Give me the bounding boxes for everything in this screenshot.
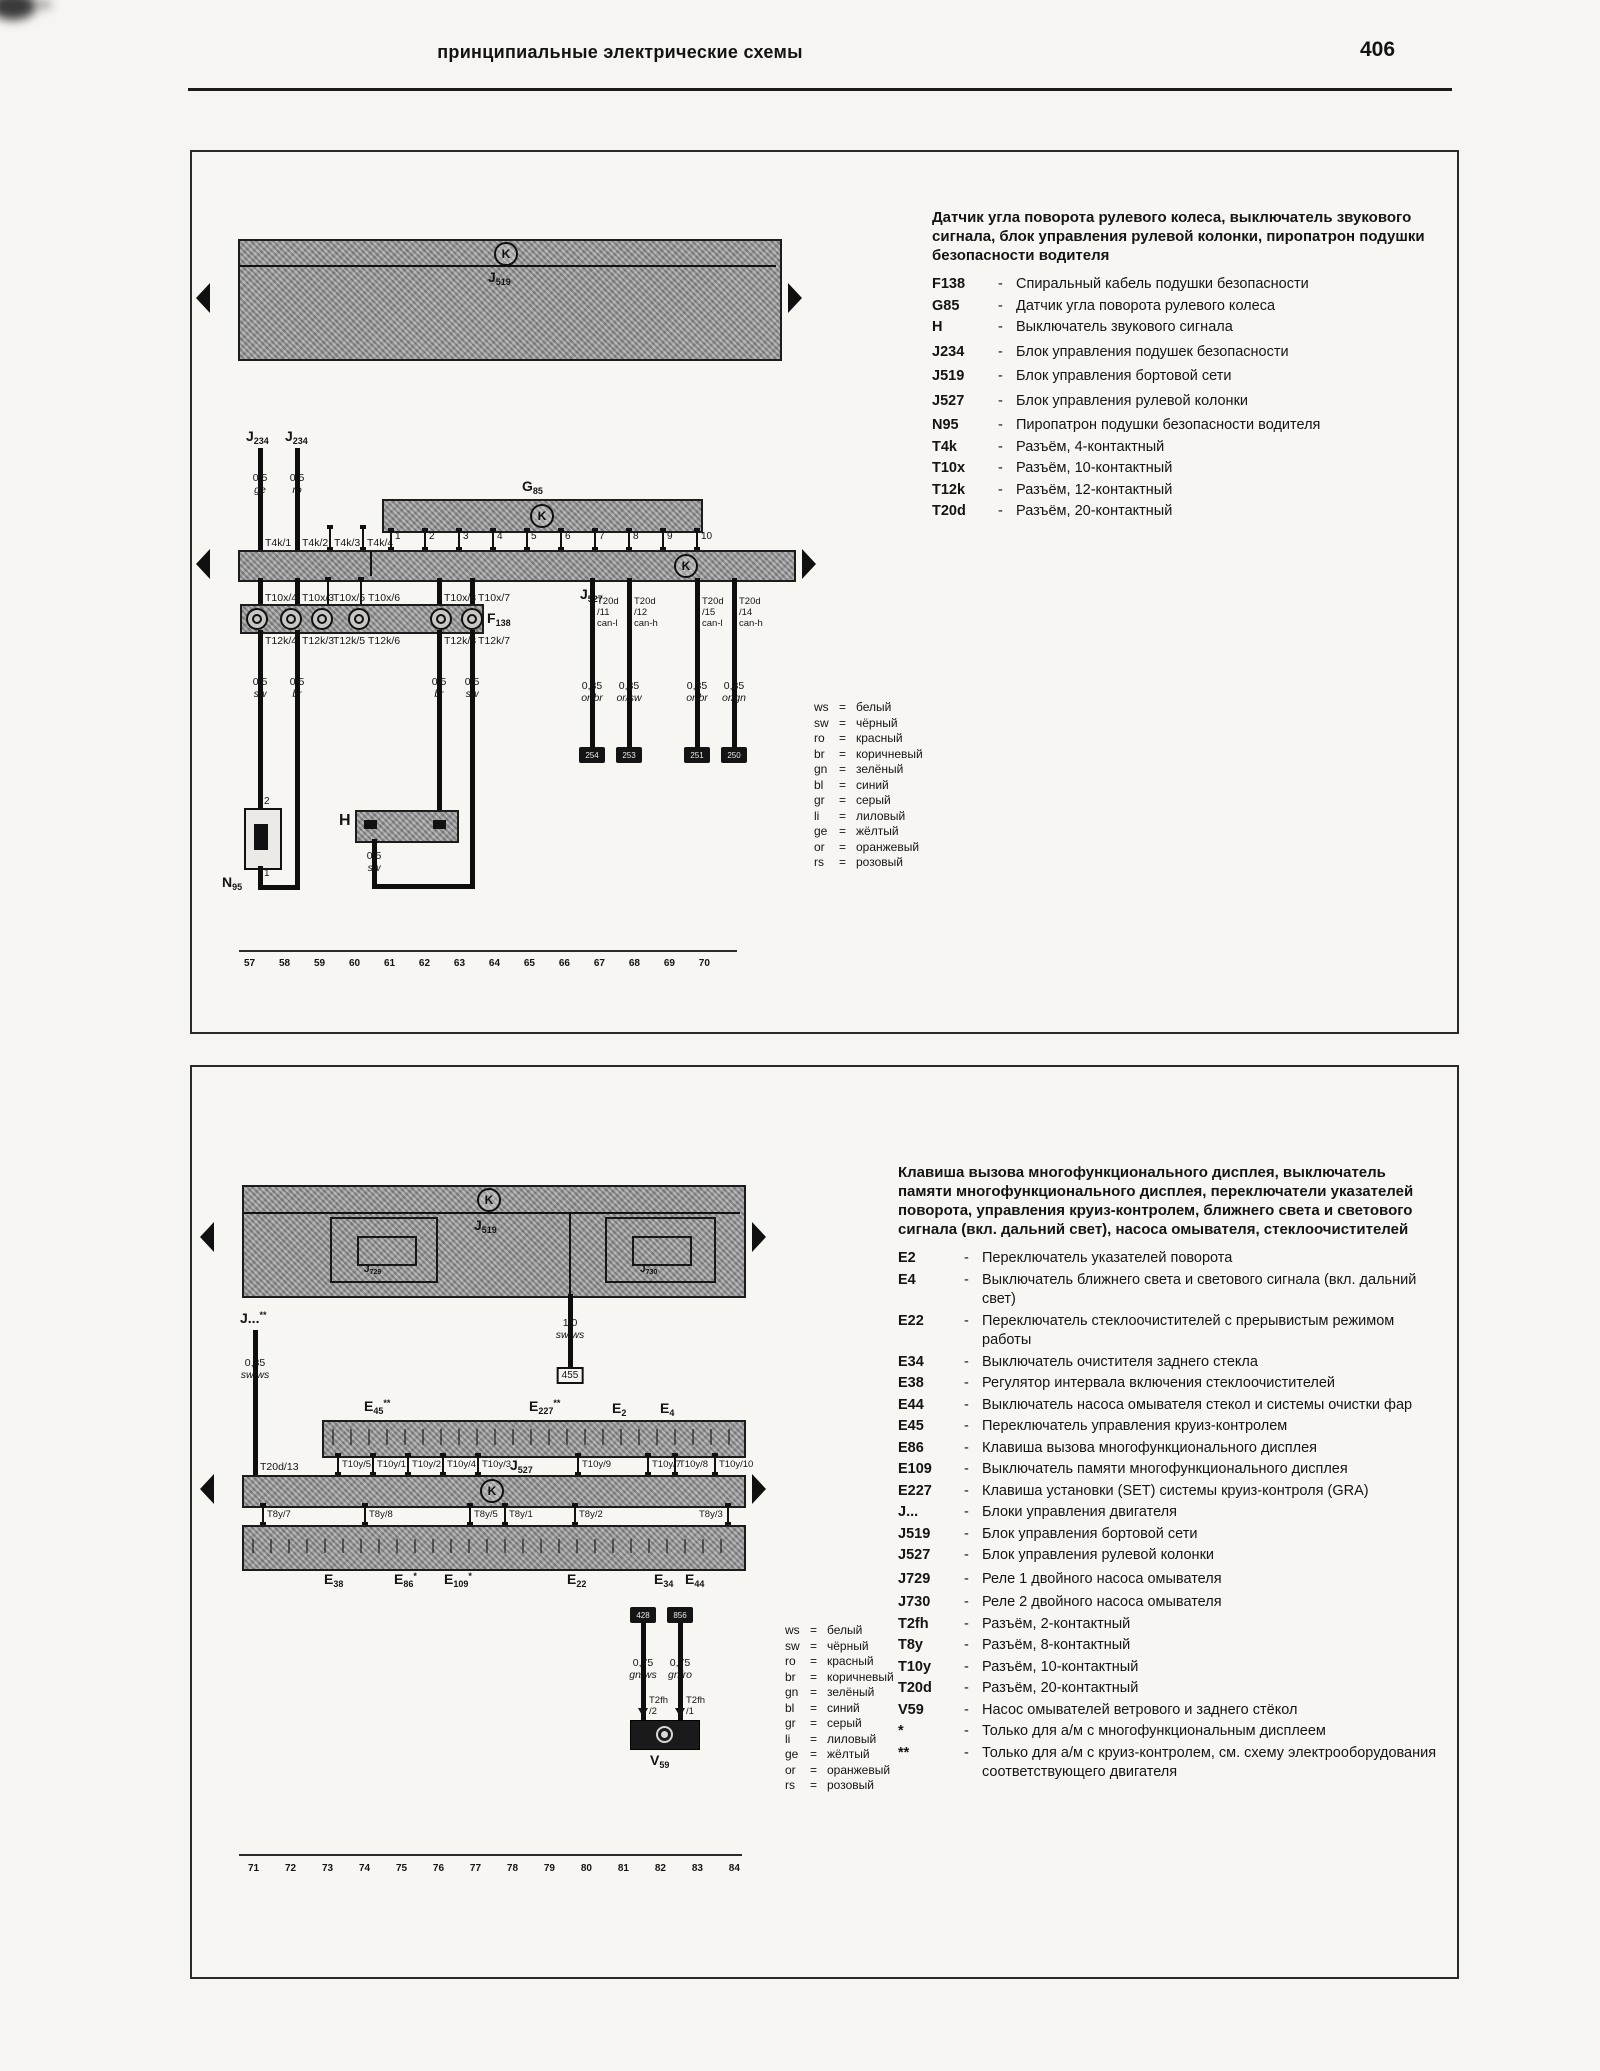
legend-row: *-Только для а/м с многофункциональным д… bbox=[898, 1722, 1443, 1742]
j730-relay-inner bbox=[632, 1236, 692, 1266]
color-abbr: bl bbox=[814, 778, 839, 794]
color-name: жёлтый bbox=[856, 824, 899, 840]
legend-row: V59-Насос омывателей ветрового и заднего… bbox=[898, 1701, 1443, 1721]
dash: - bbox=[964, 1570, 982, 1590]
equals: = bbox=[839, 747, 856, 763]
legend-row: E109-Выключатель памяти многофункциональ… bbox=[898, 1460, 1443, 1480]
legend-row: E38-Регулятор интервала включения стекло… bbox=[898, 1374, 1443, 1394]
label-sub: 86 bbox=[403, 1579, 413, 1589]
grid-number: 69 bbox=[664, 958, 675, 969]
j234-label: J234 bbox=[246, 428, 269, 446]
legend-row: E227-Клавиша установки (SET) системы кру… bbox=[898, 1482, 1443, 1502]
wire-size-color: 0,5ge bbox=[253, 472, 268, 496]
wire-color: br bbox=[432, 688, 447, 700]
component-desc: Блок управления подушек безопасности bbox=[1016, 343, 1444, 363]
bus-name: can-l bbox=[702, 618, 724, 629]
connector-label: T10x/4 bbox=[265, 592, 297, 604]
e34-label: E34 bbox=[654, 1571, 673, 1589]
g85-pin-stub bbox=[424, 529, 426, 550]
page-title: принципиальные электрические схемы bbox=[437, 42, 803, 63]
connector-label: T8y/1 bbox=[509, 1509, 533, 1520]
component-code: J527 bbox=[932, 392, 998, 412]
color-name: жёлтый bbox=[827, 1747, 870, 1763]
g85-pin-number: 7 bbox=[599, 531, 605, 542]
wire bbox=[470, 630, 475, 887]
label-sup: ** bbox=[259, 1310, 266, 1320]
color-abbr: gr bbox=[814, 793, 839, 809]
component-code: E38 bbox=[898, 1374, 964, 1394]
wire-color: br bbox=[290, 688, 305, 700]
connector-pin: /12 bbox=[634, 607, 658, 618]
label-sub: 4 bbox=[669, 1408, 674, 1418]
label-text: J bbox=[510, 1457, 518, 1473]
component-code: E227 bbox=[898, 1482, 964, 1502]
color-abbr: br bbox=[814, 747, 839, 763]
bus-name: can-h bbox=[739, 618, 763, 629]
circled-k-icon: K bbox=[494, 242, 518, 266]
wire-size: 0,35 bbox=[686, 680, 708, 692]
component-code: J519 bbox=[932, 367, 998, 387]
component-desc: Разъём, 10-контактный bbox=[982, 1658, 1443, 1678]
h-switch-pin bbox=[364, 820, 377, 829]
legend-row: E34-Выключатель очистителя заднего стекл… bbox=[898, 1353, 1443, 1373]
color-name: синий bbox=[856, 778, 889, 794]
wire-size-color: 0,5ro bbox=[290, 472, 305, 496]
equals: = bbox=[810, 1732, 827, 1748]
e4-label: E4 bbox=[660, 1400, 674, 1418]
wire-size-color: 0,35or/gn bbox=[722, 680, 746, 704]
component-legend: Клавиша вызова многофункционального дисп… bbox=[898, 1163, 1443, 1785]
legend-row: J730-Реле 2 двойного насоса омывателя bbox=[898, 1593, 1443, 1613]
component-desc: Разъём, 12-контактный bbox=[1016, 481, 1444, 501]
switch-contacts-detail bbox=[332, 1429, 732, 1445]
circled-k-icon: K bbox=[674, 554, 698, 578]
color-name: розовый bbox=[827, 1778, 874, 1794]
component-code: T4k bbox=[932, 438, 998, 458]
dash: - bbox=[964, 1701, 982, 1721]
grid-scale-line bbox=[239, 950, 737, 952]
wire-color: sw bbox=[465, 688, 480, 700]
spiral-coil-icon bbox=[430, 608, 452, 630]
dash: - bbox=[964, 1593, 982, 1613]
dash: - bbox=[964, 1460, 982, 1480]
g85-pin-number: 6 bbox=[565, 531, 571, 542]
component-desc: Спиральный кабель подушки безопасности bbox=[1016, 275, 1444, 295]
connector-label: T8y/8 bbox=[369, 1509, 393, 1520]
dash: - bbox=[964, 1417, 982, 1437]
connector-name: T2fh bbox=[649, 1695, 668, 1706]
bus-name: can-h bbox=[634, 618, 658, 629]
dash: - bbox=[998, 481, 1016, 501]
equals: = bbox=[839, 809, 856, 825]
color-row: br=коричневый bbox=[785, 1670, 894, 1686]
dash: - bbox=[998, 367, 1016, 387]
component-code: E34 bbox=[898, 1353, 964, 1373]
connector-label: T20d/11can-l bbox=[597, 596, 619, 629]
connector-stub bbox=[364, 1504, 366, 1525]
color-name: чёрный bbox=[856, 716, 898, 732]
component-desc: Выключатель очистителя заднего стекла bbox=[982, 1353, 1443, 1373]
component-code: V59 bbox=[898, 1701, 964, 1721]
can-wire bbox=[590, 578, 595, 747]
component-desc: Разъём, 4-контактный bbox=[1016, 438, 1444, 458]
connector-label: T8y/5 bbox=[474, 1509, 498, 1520]
connector-label: T4k/1 bbox=[265, 537, 291, 549]
dash: - bbox=[964, 1636, 982, 1656]
label-text: E bbox=[685, 1571, 694, 1587]
bus-seam bbox=[370, 552, 372, 576]
grid-number: 66 bbox=[559, 958, 570, 969]
grid-number: 67 bbox=[594, 958, 605, 969]
color-name: зелёный bbox=[856, 762, 903, 778]
dash: - bbox=[998, 318, 1016, 338]
g85-pin-stub bbox=[594, 529, 596, 550]
component-code: E109 bbox=[898, 1460, 964, 1480]
wire-color: sw/ws bbox=[556, 1329, 585, 1341]
wire bbox=[258, 448, 263, 550]
wire-size: 1,0 bbox=[556, 1317, 585, 1329]
color-name: синий bbox=[827, 1701, 860, 1717]
wire-color: or/br bbox=[686, 692, 708, 704]
e45-label: E45** bbox=[364, 1398, 390, 1416]
connector-pin: /1 bbox=[686, 1706, 705, 1717]
legend-row: T10y-Разъём, 10-контактный bbox=[898, 1658, 1443, 1678]
wire-size-color: 0,5sw bbox=[253, 676, 268, 700]
n95-pin-bottom: 1 bbox=[264, 868, 270, 879]
connector-label: T12k/4 bbox=[265, 635, 297, 647]
wire-arrow-icon bbox=[638, 1708, 648, 1717]
j729-label: J729 bbox=[364, 1264, 381, 1276]
color-abbr: li bbox=[785, 1732, 810, 1748]
label-text: J bbox=[285, 428, 293, 444]
grid-number: 82 bbox=[655, 1863, 666, 1874]
component-code: * bbox=[898, 1722, 964, 1742]
equals: = bbox=[810, 1623, 827, 1639]
grid-number: 74 bbox=[359, 1863, 370, 1874]
wire-color: sw bbox=[367, 862, 382, 874]
connector-stub bbox=[674, 1454, 676, 1475]
label-sub: 95 bbox=[232, 882, 242, 892]
component-desc: Разъём, 2-контактный bbox=[982, 1615, 1443, 1635]
wire-size-color: 0,5sw bbox=[465, 676, 480, 700]
terminal-box: 254 bbox=[579, 747, 605, 763]
j519-label: J519 bbox=[474, 1217, 497, 1235]
label-sub: 44 bbox=[694, 1579, 704, 1589]
color-abbr: ro bbox=[785, 1654, 810, 1670]
label-text: H bbox=[339, 812, 351, 829]
spiral-coil-icon bbox=[461, 608, 483, 630]
connector-label: T4k/2 bbox=[302, 537, 328, 549]
equals: = bbox=[810, 1685, 827, 1701]
n95-core bbox=[254, 824, 268, 850]
connector-stub bbox=[477, 1454, 479, 1475]
continuation-arrow-right-icon bbox=[752, 1222, 766, 1252]
label-sub: 527 bbox=[518, 1465, 533, 1475]
component-code: J527 bbox=[898, 1546, 964, 1566]
spiral-coil-icon bbox=[246, 608, 268, 630]
component-desc: Блоки управления двигателя bbox=[982, 1503, 1443, 1523]
terminal-box: 251 bbox=[684, 747, 710, 763]
connector-pin: /11 bbox=[597, 607, 619, 618]
legend-row: J527-Блок управления рулевой колонки bbox=[898, 1546, 1443, 1566]
label-text: J... bbox=[240, 1310, 259, 1326]
connector-label: T20d/14can-h bbox=[739, 596, 763, 629]
component-desc: Только для а/м с многофункциональным дис… bbox=[982, 1722, 1443, 1742]
color-row: bl=синий bbox=[814, 778, 923, 794]
wire-size: 0,5 bbox=[367, 850, 382, 862]
equals: = bbox=[810, 1701, 827, 1717]
component-desc: Блок управления рулевой колонки bbox=[1016, 392, 1444, 412]
label-sub: 519 bbox=[496, 277, 511, 287]
legend-row: T8y-Разъём, 8-контактный bbox=[898, 1636, 1443, 1656]
g85-pin-stub bbox=[662, 529, 664, 550]
component-code: T12k bbox=[932, 481, 998, 501]
spiral-coil-icon bbox=[311, 608, 333, 630]
wire-color-key: ws=белый sw=чёрный ro=красный br=коричне… bbox=[814, 700, 923, 871]
color-name: серый bbox=[827, 1716, 862, 1732]
component-desc: Выключатель насоса омывателя стекол и си… bbox=[982, 1396, 1443, 1416]
connector-stub bbox=[727, 1504, 729, 1525]
continuation-arrow-right-icon bbox=[802, 549, 816, 579]
label-text: E bbox=[654, 1571, 663, 1587]
wire bbox=[295, 448, 300, 550]
equals: = bbox=[839, 700, 856, 716]
connector-label: T10y/5 bbox=[342, 1459, 371, 1470]
color-abbr: gn bbox=[785, 1685, 810, 1701]
color-abbr: sw bbox=[814, 716, 839, 732]
color-abbr: li bbox=[814, 809, 839, 825]
connector-label: T10x/8 bbox=[444, 592, 476, 604]
grid-number: 79 bbox=[544, 1863, 555, 1874]
v59-label: V59 bbox=[650, 1752, 669, 1770]
circled-k-icon: K bbox=[530, 504, 554, 528]
color-row: or=оранжевый bbox=[814, 840, 923, 856]
color-abbr: ge bbox=[814, 824, 839, 840]
component-desc: Переключатель управления круиз-контролем bbox=[982, 1417, 1443, 1437]
legend-row: J729-Реле 1 двойного насоса омывателя bbox=[898, 1570, 1443, 1590]
color-name: серый bbox=[856, 793, 891, 809]
equals: = bbox=[810, 1716, 827, 1732]
wire-size: 0,5 bbox=[290, 472, 305, 484]
circled-k-icon: K bbox=[480, 1479, 504, 1503]
connector-stub bbox=[647, 1454, 649, 1475]
connector-stub bbox=[714, 1454, 716, 1475]
grid-number: 78 bbox=[507, 1863, 518, 1874]
dash: - bbox=[964, 1525, 982, 1545]
wire-size-color: 0,75gn/ro bbox=[668, 1657, 692, 1681]
equals: = bbox=[839, 716, 856, 732]
connector-label: T10y/3 bbox=[482, 1459, 511, 1470]
connector-stub bbox=[337, 1454, 339, 1475]
legend-title: Датчик угла поворота рулевого колеса, вы… bbox=[932, 208, 1444, 265]
color-abbr: ws bbox=[785, 1623, 810, 1639]
equals: = bbox=[839, 778, 856, 794]
equals: = bbox=[810, 1639, 827, 1655]
grid-number: 61 bbox=[384, 958, 395, 969]
connector-label: T20d/15can-l bbox=[702, 596, 724, 629]
legend-row: G85-Датчик угла поворота рулевого колеса bbox=[932, 297, 1444, 317]
connector-stub bbox=[504, 1504, 506, 1525]
dash: - bbox=[998, 438, 1016, 458]
legend-row: H-Выключатель звукового сигнала bbox=[932, 318, 1444, 338]
terminal-box: 856 bbox=[667, 1607, 693, 1623]
component-desc: Датчик угла поворота рулевого колеса bbox=[1016, 297, 1444, 317]
connector-stub bbox=[372, 1454, 374, 1475]
grid-number: 58 bbox=[279, 958, 290, 969]
connector-label: T10x/5 bbox=[333, 592, 365, 604]
label-sub: 34 bbox=[663, 1579, 673, 1589]
label-text: E bbox=[364, 1398, 373, 1414]
label-sub: 2 bbox=[621, 1408, 626, 1418]
grid-number: 59 bbox=[314, 958, 325, 969]
n95-pin-top: 2 bbox=[264, 796, 270, 807]
component-code: J234 bbox=[932, 343, 998, 363]
component-code: T20d bbox=[898, 1679, 964, 1699]
wire-size-color: 0,75gn/ws bbox=[629, 1657, 656, 1681]
legend-row: J519-Блок управления бортовой сети bbox=[898, 1525, 1443, 1545]
color-name: коричневый bbox=[856, 747, 923, 763]
color-row: bl=синий bbox=[785, 1701, 894, 1717]
grid-number: 71 bbox=[248, 1863, 259, 1874]
connector-pin: /2 bbox=[649, 1706, 668, 1717]
legend-row: E86-Клавиша вызова многофункционального … bbox=[898, 1439, 1443, 1459]
component-code: J... bbox=[898, 1503, 964, 1523]
continuation-arrow-left-icon bbox=[200, 1474, 214, 1504]
component-code: T2fh bbox=[898, 1615, 964, 1635]
wire-color: sw/ws bbox=[241, 1369, 270, 1381]
e2-label: E2 bbox=[612, 1400, 626, 1418]
component-desc: Клавиша установки (SET) системы круиз-ко… bbox=[982, 1482, 1443, 1502]
label-text: J bbox=[580, 586, 588, 602]
label-sub: 22 bbox=[576, 1579, 586, 1589]
j527-label: J527 bbox=[510, 1457, 533, 1475]
wire-color: or/br bbox=[581, 692, 603, 704]
e227-label: E227** bbox=[529, 1398, 560, 1416]
e109-label: E109* bbox=[444, 1571, 472, 1589]
component-code: E2 bbox=[898, 1249, 964, 1269]
label-text: N bbox=[222, 874, 232, 890]
g85-pin-stub bbox=[458, 529, 460, 550]
component-code: T10x bbox=[932, 459, 998, 479]
legend-row: E22-Переключатель стеклоочистителей с пр… bbox=[898, 1312, 1443, 1351]
component-code: E4 bbox=[898, 1271, 964, 1310]
color-row: rs=розовый bbox=[814, 855, 923, 871]
color-name: зелёный bbox=[827, 1685, 874, 1701]
label-text: E bbox=[567, 1571, 576, 1587]
connector-label: T10y/2 bbox=[412, 1459, 441, 1470]
grid-numbers: 5758596061626364656667686970 bbox=[244, 958, 710, 969]
component-code: N95 bbox=[932, 416, 998, 436]
equals: = bbox=[839, 731, 856, 747]
spiral-coil-icon bbox=[280, 608, 302, 630]
component-code: H bbox=[932, 318, 998, 338]
color-row: gr=серый bbox=[785, 1716, 894, 1732]
dash: - bbox=[964, 1396, 982, 1416]
equals: = bbox=[839, 793, 856, 809]
component-desc: Разъём, 10-контактный bbox=[1016, 459, 1444, 479]
color-row: or=оранжевый bbox=[785, 1763, 894, 1779]
wire-color: gn/ws bbox=[629, 1669, 656, 1681]
color-abbr: sw bbox=[785, 1639, 810, 1655]
color-name: чёрный bbox=[827, 1639, 869, 1655]
legend-row: E45-Переключатель управления круиз-контр… bbox=[898, 1417, 1443, 1437]
color-abbr: gr bbox=[785, 1716, 810, 1732]
wiring-diagram-panel-2: K J519 J729 J730 1,0sw/ws 455 J...** 0,3… bbox=[190, 1065, 1459, 1979]
header-rule bbox=[188, 88, 1452, 91]
legend-row: T10x-Разъём, 10-контактный bbox=[932, 459, 1444, 479]
terminal-box: 428 bbox=[630, 1607, 656, 1623]
legend-row: T12k-Разъём, 12-контактный bbox=[932, 481, 1444, 501]
wire-color: or/gn bbox=[722, 692, 746, 704]
connector-label: T10y/8 bbox=[679, 1459, 708, 1470]
motor-icon bbox=[656, 1726, 673, 1743]
legend-row: T2fh-Разъём, 2-контактный bbox=[898, 1615, 1443, 1635]
color-name: розовый bbox=[856, 855, 903, 871]
terminal-box: 253 bbox=[616, 747, 642, 763]
dash: - bbox=[964, 1374, 982, 1394]
wire-size-color: 0,35sw/ws bbox=[241, 1357, 270, 1381]
g85-pin-number: 10 bbox=[701, 531, 712, 542]
connector-label: T12k/5 bbox=[333, 635, 365, 647]
spiral-coil-icon bbox=[348, 608, 370, 630]
legend-row: J527-Блок управления рулевой колонки bbox=[932, 392, 1444, 412]
continuation-arrow-right-icon bbox=[752, 1474, 766, 1504]
label-text: E bbox=[394, 1571, 403, 1587]
color-row: sw=чёрный bbox=[814, 716, 923, 732]
connector-label: T8y/2 bbox=[579, 1509, 603, 1520]
label-sub: 59 bbox=[659, 1760, 669, 1770]
label-sub: 138 bbox=[496, 618, 511, 628]
color-abbr: bl bbox=[785, 1701, 810, 1717]
color-name: красный bbox=[856, 731, 903, 747]
color-name: белый bbox=[856, 700, 891, 716]
connector-stub bbox=[329, 526, 331, 550]
component-desc: Только для а/м с круиз-контролем, см. сх… bbox=[982, 1744, 1443, 1783]
color-name: оранжевый bbox=[856, 840, 919, 856]
color-abbr: ge bbox=[785, 1747, 810, 1763]
legend-row: N95-Пиропатрон подушки безопасности води… bbox=[932, 416, 1444, 436]
label-text: E bbox=[444, 1571, 453, 1587]
legend-row: E2-Переключатель указателей поворота bbox=[898, 1249, 1443, 1269]
dash: - bbox=[964, 1353, 982, 1373]
color-abbr: or bbox=[785, 1763, 810, 1779]
connector-name: T2fh bbox=[686, 1695, 705, 1706]
color-row: li=лиловый bbox=[785, 1732, 894, 1748]
wire-size: 0,75 bbox=[629, 1657, 656, 1669]
component-code: E44 bbox=[898, 1396, 964, 1416]
connector-label: T10y/10 bbox=[719, 1459, 753, 1470]
equals: = bbox=[839, 824, 856, 840]
component-code: J729 bbox=[898, 1570, 964, 1590]
label-sup: * bbox=[468, 1571, 472, 1581]
label-text: J bbox=[474, 1217, 482, 1233]
equals: = bbox=[839, 840, 856, 856]
g85-pin-number: 2 bbox=[429, 531, 435, 542]
color-row: ro=красный bbox=[785, 1654, 894, 1670]
bus-name: can-l bbox=[597, 618, 619, 629]
g85-pin-number: 4 bbox=[497, 531, 503, 542]
wire-size: 0,5 bbox=[432, 676, 447, 688]
manual-page: принципиальные электрические схемы 406 K… bbox=[0, 0, 1600, 2071]
color-abbr: gn bbox=[814, 762, 839, 778]
connector-label: T8y/7 bbox=[267, 1509, 291, 1520]
label-text: E bbox=[324, 1571, 333, 1587]
legend-title: Клавиша вызова многофункционального дисп… bbox=[898, 1163, 1443, 1239]
color-row: ro=красный bbox=[814, 731, 923, 747]
color-row: br=коричневый bbox=[814, 747, 923, 763]
label-sub: 730 bbox=[646, 1269, 658, 1276]
equals: = bbox=[810, 1747, 827, 1763]
